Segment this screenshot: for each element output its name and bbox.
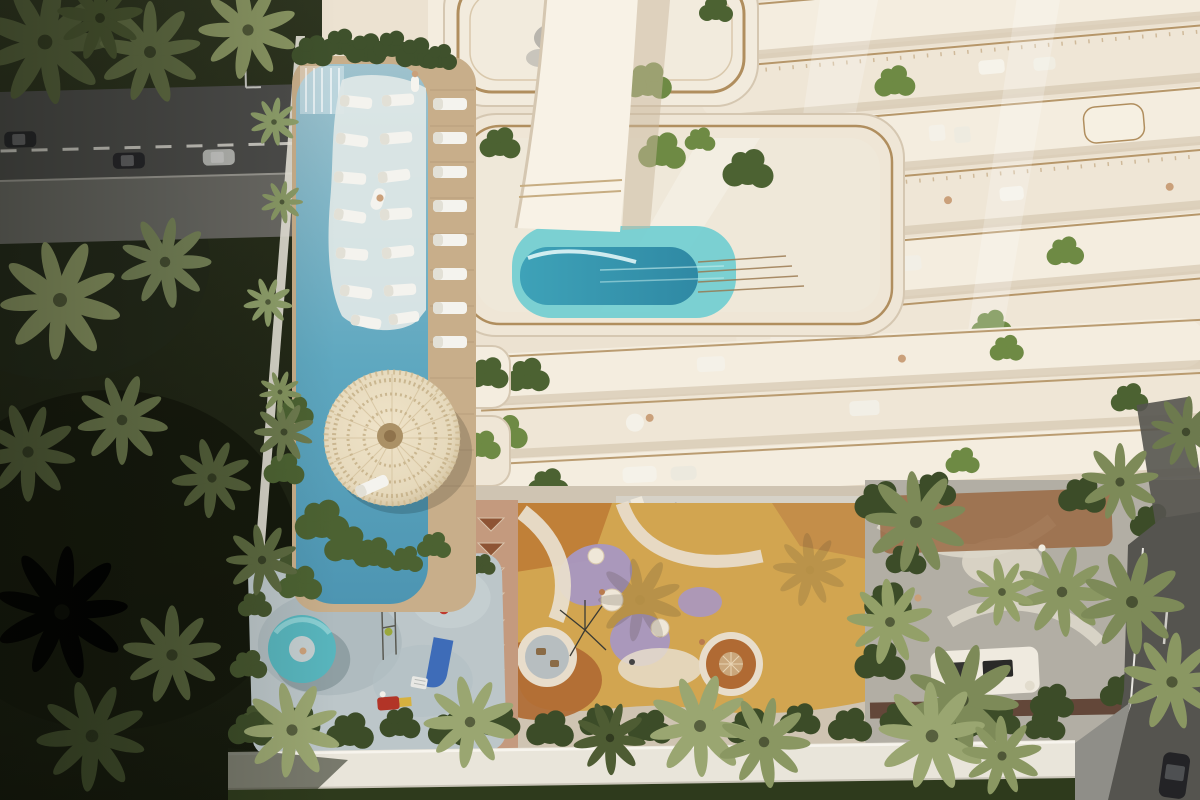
aerial-render-image (0, 0, 1200, 800)
vignette-overlay (0, 0, 1200, 800)
scene-canvas (0, 0, 1200, 800)
